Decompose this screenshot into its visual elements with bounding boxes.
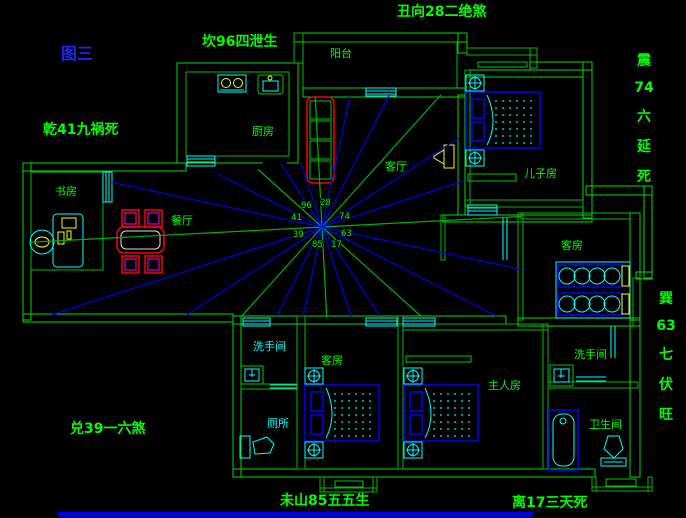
room-label-master: 主人房 [488,380,521,391]
window-guest-s [366,318,397,326]
compass-number: 96 [301,201,312,211]
twin-beds-guest-ne [556,262,630,318]
door-hall-glass [503,217,507,260]
door-washroom-e [611,326,615,358]
window-washroom-w [243,318,270,326]
nightstand [305,442,323,458]
balcony-planter [307,97,334,183]
bagua-label-dui: 兑39一六煞 [70,422,145,436]
window-study [103,172,112,202]
compass-number: 28 [320,198,331,208]
bagua-label-weishan: 未山85五五生 [280,494,369,508]
floorplan-drawing: 9628417439638517 [0,0,686,518]
floorplan-canvas: 9628417439638517 图三 坎96四泄生 丑向28二绝煞 乾41九祸… [0,0,686,518]
compass-number: 39 [293,230,304,240]
nightstand [466,150,484,166]
room-label-living: 客厅 [385,161,407,172]
room-label-balcony: 阳台 [330,48,352,59]
kitchen-sink [258,75,283,94]
compass-number: 63 [341,229,352,239]
room-label-washroom-e: 洗手间 [574,349,607,360]
washroom-e-sink [550,365,573,386]
compass-ray [322,227,497,316]
bagua-label-xun: 巽 63 七 伏 旺 [654,288,678,424]
toilet-e [601,436,626,466]
compass-ray [322,227,522,269]
nightstand [404,368,422,384]
compass-number: 41 [291,213,302,223]
compass-number: 74 [339,212,350,222]
bagua-label-chou: 丑向28二绝煞 [397,5,486,19]
bagua-label-li: 离17三天死 [512,496,587,510]
room-label-guest-s: 客房 [321,355,343,366]
nightstand [305,368,323,384]
bagua-label-qian: 乾41九祸死 [43,123,118,137]
bed-sons-room [466,92,540,148]
door-washroom-divider [270,385,297,388]
bottom-blue-strip [58,512,533,517]
bathtub [549,410,578,470]
room-label-guest-ne: 客房 [561,240,583,251]
bed-guest-s [305,385,379,441]
compass-number: 85 [312,240,323,250]
room-label-washroom-w: 洗手间 [253,341,286,352]
toilet-w [240,436,274,458]
room-label-study: 书房 [55,186,77,197]
compass-ray [322,95,389,227]
window-kitchen [187,156,215,166]
room-label-bathroom-e: 卫生间 [589,419,622,430]
door-bath-divider [576,377,606,381]
dining-chairs [122,210,162,273]
figure-label: 图三 [61,46,93,62]
compass-number: 17 [331,240,342,250]
window-master [403,318,435,326]
kitchen-stove [218,75,246,92]
room-label-toilet-w: 厕所 [267,418,289,429]
nightstand [404,442,422,458]
washroom-w-sink [241,366,263,384]
room-label-kitchen: 厨房 [252,126,274,137]
room-label-dining: 餐厅 [171,215,193,226]
bed-master [404,385,478,441]
compass-ray [48,227,322,316]
compass-ray [31,227,322,242]
window-balcony [366,88,396,96]
bagua-label-kan: 坎96四泄生 [202,35,277,49]
room-label-sons-room: 儿子房 [524,168,557,179]
bagua-label-zhen: 震 74 六 延 死 [632,50,656,186]
dining-table [117,227,164,253]
windows-and-doors [103,88,615,388]
